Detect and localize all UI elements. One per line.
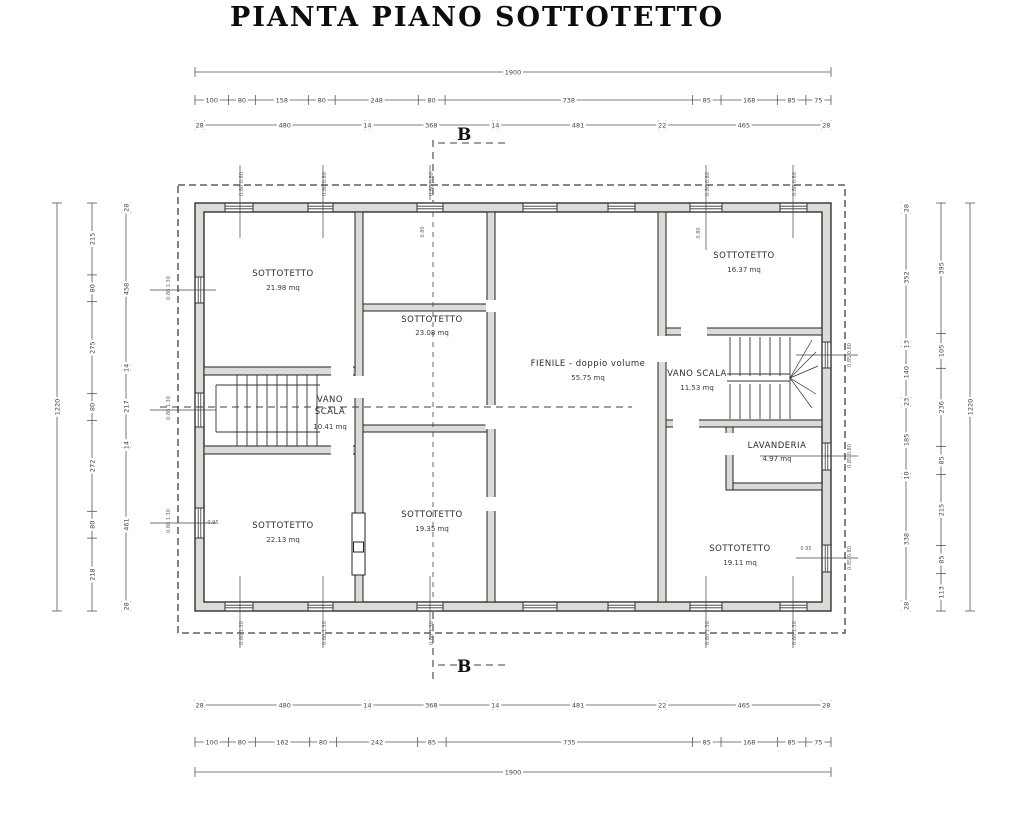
dimension-value: 28 bbox=[196, 701, 204, 709]
dimension-value: 352 bbox=[902, 271, 910, 283]
window bbox=[417, 203, 443, 212]
dimension-chain-top-detail: 100801588024880738851688575 bbox=[195, 95, 831, 105]
floor-plan-drawing: B B 0.80 0.800.80 0.800.80 0.800.80 0.80… bbox=[0, 0, 1024, 830]
dimension-value: 242 bbox=[371, 738, 383, 746]
dimension-value: 85 bbox=[937, 456, 945, 464]
dimension-value: 80 bbox=[88, 403, 96, 411]
dimension-value: 80 bbox=[428, 96, 436, 104]
dimension-value: 168 bbox=[743, 738, 755, 746]
dimension-value: 215 bbox=[937, 504, 945, 516]
dimension-value: 75 bbox=[814, 738, 822, 746]
dimension-value: 22 bbox=[658, 701, 666, 709]
window-size-tag: 0.85 0.80 bbox=[847, 444, 853, 468]
dimension-value: 1220 bbox=[966, 399, 974, 416]
section-marker-b-bottom: B bbox=[457, 657, 471, 677]
window-size-tag: 0.80 1.30 bbox=[429, 621, 435, 645]
window-size-tag: 0.80 bbox=[696, 227, 702, 238]
dimension-value: 458 bbox=[122, 283, 130, 295]
dimension-value: 28 bbox=[902, 602, 910, 610]
dimension-value: 461 bbox=[122, 518, 130, 530]
dimension-value: 22 bbox=[658, 121, 666, 129]
dimension-value: 1900 bbox=[505, 768, 522, 776]
room-label-sottotetto-bottom-left: SOTTOTETTO bbox=[252, 521, 314, 531]
dimension-value: 14 bbox=[491, 121, 499, 129]
room-area-vano-scala-left: 10.41 mq bbox=[313, 423, 347, 431]
dimension-value: 185 bbox=[902, 434, 910, 446]
dimension-value: 1220 bbox=[53, 399, 61, 416]
dimension-value: 1900 bbox=[505, 68, 522, 76]
dimension-value: 738 bbox=[563, 96, 575, 104]
dimension-value: 105 bbox=[937, 345, 945, 357]
window-size-tag: 0.80 bbox=[420, 226, 426, 237]
room-label-sottotetto-top-left: SOTTOTETTO bbox=[252, 269, 314, 279]
dimension-value: 100 bbox=[206, 738, 218, 746]
dimension-value: 13 bbox=[902, 340, 910, 348]
dimension-value: 248 bbox=[371, 96, 383, 104]
room-area-sottotetto-bottom-left: 22.13 mq bbox=[266, 536, 300, 544]
dimension-value: 14 bbox=[122, 441, 130, 449]
window bbox=[780, 203, 807, 212]
dimension-value: 480 bbox=[278, 701, 290, 709]
dimension-chain-left-total: 1220 bbox=[52, 203, 62, 611]
dimension-chain-top-total: 1900 bbox=[195, 67, 831, 77]
window-size-tag: 0.80 1.30 bbox=[239, 621, 245, 645]
window-size-tag: 0.80 1.30 bbox=[166, 509, 172, 533]
window-size-tag: 0.80 0.80 bbox=[239, 172, 245, 196]
window-size-tag: 0.80 0.80 bbox=[705, 172, 711, 196]
window-size-tag: 0.80 1.30 bbox=[705, 621, 711, 645]
window bbox=[225, 203, 253, 212]
dimension-chain-left-grid: 28458142171446128 bbox=[121, 202, 131, 612]
window bbox=[308, 602, 333, 611]
dimension-value: 480 bbox=[278, 121, 290, 129]
dimension-value: 85 bbox=[703, 96, 711, 104]
room-area-lavanderia: 4.97 mq bbox=[762, 455, 791, 463]
room-label-fienile: FIENILE - doppio volume bbox=[531, 359, 646, 369]
window bbox=[822, 443, 831, 470]
dimension-chain-left-detail: 215802758027280218 bbox=[87, 203, 97, 611]
dimension-value: 168 bbox=[743, 96, 755, 104]
dimension-value: 162 bbox=[276, 738, 288, 746]
dimension-value: 275 bbox=[88, 341, 96, 353]
window-size-tag: 0.80 1.30 bbox=[166, 276, 172, 300]
duct-shaft bbox=[352, 513, 365, 575]
window bbox=[608, 602, 635, 611]
dimension-value: 465 bbox=[738, 701, 750, 709]
dimension-value: 218 bbox=[88, 568, 96, 580]
dimension-value: 28 bbox=[902, 204, 910, 212]
window-size-tag: 0.85 0.80 bbox=[847, 546, 853, 570]
dimension-value: 28 bbox=[122, 204, 130, 212]
window-size-tag: 0.85 0.80 bbox=[847, 343, 853, 367]
window bbox=[822, 545, 831, 572]
dimension-value: 85 bbox=[937, 555, 945, 563]
window-size-tag: 0.95 bbox=[800, 546, 811, 552]
dimension-value: 85 bbox=[787, 738, 795, 746]
dimension-chain-top-grid: 2848014368144812246528 bbox=[194, 120, 832, 130]
dimension-value: 140 bbox=[902, 366, 910, 378]
dimension-value: 85 bbox=[703, 738, 711, 746]
room-area-sottotetto-bottom-mid: 19.35 mq bbox=[415, 525, 449, 533]
dimension-value: 14 bbox=[363, 121, 371, 129]
room-label-vano-scala-right: VANO SCALA bbox=[667, 369, 727, 379]
dimension-value: 28 bbox=[196, 121, 204, 129]
window-size-tag: 0.80 0.80 bbox=[322, 172, 328, 196]
room-area-sottotetto-bottom-right: 19.11 mq bbox=[723, 559, 757, 567]
window-size-tag: 0.80 1.30 bbox=[792, 621, 798, 645]
dimension-value: 28 bbox=[822, 121, 830, 129]
dimension-value: 215 bbox=[88, 233, 96, 245]
dimension-value: 217 bbox=[122, 400, 130, 412]
dimension-value: 368 bbox=[425, 121, 437, 129]
dimension-value: 158 bbox=[276, 96, 288, 104]
window-size-tag: 0.95 bbox=[207, 520, 218, 526]
dimension-chain-bottom-detail: 100801628024285735851688575 bbox=[195, 737, 831, 747]
dimension-value: 236 bbox=[937, 401, 945, 413]
dimension-value: 113 bbox=[937, 586, 945, 598]
dimension-value: 735 bbox=[563, 738, 575, 746]
dimension-value: 14 bbox=[491, 701, 499, 709]
room-area-sottotetto-top-left: 21.98 mq bbox=[266, 284, 300, 292]
room-area-sottotetto-top-right: 16.37 mq bbox=[727, 266, 761, 274]
window bbox=[608, 203, 635, 212]
room-area-fienile: 55.75 mq bbox=[571, 374, 605, 382]
dimension-value: 338 bbox=[902, 533, 910, 545]
room-label-sottotetto-bottom-mid: SOTTOTETTO bbox=[401, 510, 463, 520]
window bbox=[225, 602, 253, 611]
dimension-value: 75 bbox=[814, 96, 822, 104]
window-size-tag: 0.80 0.80 bbox=[792, 172, 798, 196]
window-size-tag: 0.80 1.30 bbox=[166, 396, 172, 420]
room-label-sottotetto-mid-top: SOTTOTETTO bbox=[401, 315, 463, 325]
dimension-value: 481 bbox=[572, 701, 584, 709]
dimension-value: 28 bbox=[822, 701, 830, 709]
window bbox=[780, 602, 807, 611]
window bbox=[523, 602, 557, 611]
dimension-value: 23 bbox=[902, 398, 910, 406]
dimension-value: 465 bbox=[738, 121, 750, 129]
dimension-value: 395 bbox=[937, 262, 945, 274]
dimension-value: 80 bbox=[238, 96, 246, 104]
dimension-value: 80 bbox=[88, 284, 96, 292]
window-size-tag: 0.80 1.30 bbox=[322, 621, 328, 645]
dimension-chain-bottom-total: 1900 bbox=[195, 767, 831, 777]
dimension-chain-right-total: 1220 bbox=[965, 203, 975, 611]
dimension-value: 368 bbox=[425, 701, 437, 709]
dimension-value: 14 bbox=[122, 364, 130, 372]
dimension-value: 80 bbox=[319, 738, 327, 746]
room-label-lavanderia: LAVANDERIA bbox=[748, 441, 807, 451]
dimension-chain-bottom-grid: 2848014368144812246528 bbox=[194, 700, 832, 710]
dimension-chain-right-grid: 2835213140231851033828 bbox=[901, 202, 911, 612]
dimension-value: 10 bbox=[902, 471, 910, 479]
dimension-value: 80 bbox=[238, 738, 246, 746]
window-size-tag: 0.80 0.80 bbox=[429, 172, 435, 196]
dimension-value: 100 bbox=[206, 96, 218, 104]
window bbox=[308, 203, 333, 212]
dimension-value: 80 bbox=[88, 521, 96, 529]
dimension-value: 85 bbox=[428, 738, 436, 746]
dimension-value: 481 bbox=[572, 121, 584, 129]
dimension-value: 80 bbox=[318, 96, 326, 104]
dimension-value: 272 bbox=[88, 460, 96, 472]
dimension-chain-right-detail: 3951052368521585113 bbox=[936, 203, 946, 611]
dimension-value: 85 bbox=[787, 96, 795, 104]
room-label-sottotetto-top-right: SOTTOTETTO bbox=[713, 251, 775, 261]
window bbox=[523, 203, 557, 212]
dimension-value: 28 bbox=[122, 602, 130, 610]
page: PIANTA PIANO SOTTOTETTO bbox=[0, 0, 1024, 830]
room-area-sottotetto-mid-top: 23.08 mq bbox=[415, 329, 449, 337]
room-area-vano-scala-right: 11.53 mq bbox=[680, 384, 714, 392]
dimension-value: 14 bbox=[363, 701, 371, 709]
section-marker-b-top: B bbox=[457, 125, 471, 145]
room-label-sottotetto-bottom-right: SOTTOTETTO bbox=[709, 544, 771, 554]
